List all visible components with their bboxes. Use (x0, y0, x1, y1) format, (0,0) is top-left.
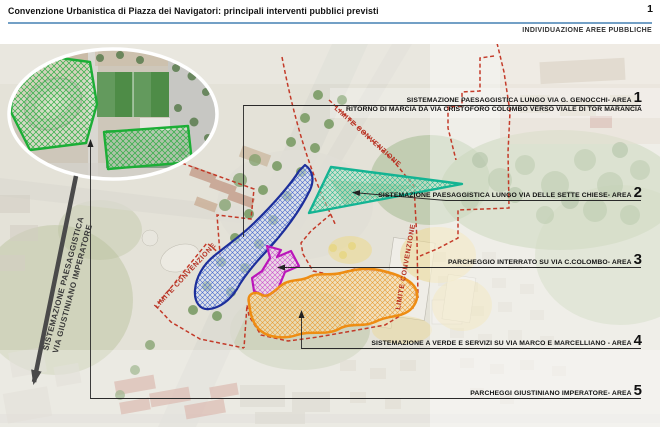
header: Convenzione Urbanistica di Piazza dei Na… (0, 0, 660, 44)
page-title: Convenzione Urbanistica di Piazza dei Na… (8, 6, 379, 16)
annotation-area-2-number: 2 (634, 185, 642, 200)
annotation-area-5: PARCHEGGI GIUSTINIANO IMPERATORE- AREA 5 (470, 383, 642, 398)
annotation-area-1-subtext: RITORNO DI MARCIA DA VIA CRISTOFORO COLO… (346, 106, 642, 113)
page-subtitle: INDIVIDUAZIONE AREE PUBBLICHE (522, 27, 652, 34)
annotation-area-5-number: 5 (634, 383, 642, 398)
annotation-area-5-label: PARCHEGGI GIUSTINIANO IMPERATORE- AREA (470, 390, 631, 397)
annotation-area-1-label: SISTEMAZIONE PAESAGGISTICA LUNGO VIA G. … (407, 97, 632, 104)
annotation-area-1-number: 1 (634, 90, 642, 105)
map-svg: LIMITE CONVENZIONE LIMITE CONVENZIONE LI… (0, 0, 660, 430)
annotation-area-3: PARCHEGGIO INTERRATO SU VIA C.COLOMBO- A… (448, 252, 642, 267)
annotation-area-2-label: SISTEMAZIONE PAESAGGISTICA LUNGO VIA DEL… (378, 192, 631, 199)
annotation-area-2: SISTEMAZIONE PAESAGGISTICA LUNGO VIA DEL… (378, 185, 642, 200)
annotation-area-4: SISTEMAZIONE A VERDE E SERVIZI SU VIA MA… (371, 333, 642, 348)
plan-page: LIMITE CONVENZIONE LIMITE CONVENZIONE LI… (0, 0, 660, 430)
annotation-area-3-label: PARCHEGGIO INTERRATO SU VIA C.COLOMBO- A… (448, 259, 632, 266)
annotation-area-4-number: 4 (634, 333, 642, 348)
annotation-area-3-number: 3 (634, 252, 642, 267)
annotation-area-4-label: SISTEMAZIONE A VERDE E SERVIZI SU VIA MA… (371, 340, 631, 347)
header-rule (8, 22, 652, 24)
annotation-area-1: SISTEMAZIONE PAESAGGISTICA LUNGO VIA G. … (407, 90, 642, 105)
page-number: 1 (647, 3, 653, 15)
